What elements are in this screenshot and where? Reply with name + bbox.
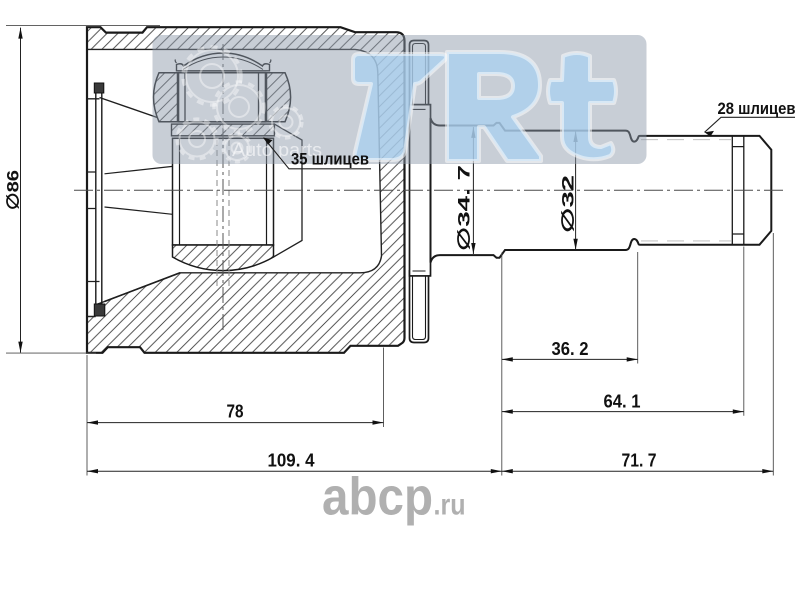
- svg-text:64. 1: 64. 1: [604, 392, 641, 412]
- svg-text:∅86: ∅86: [4, 170, 23, 210]
- svg-text:abcp: abcp: [322, 468, 433, 527]
- svg-text:28 шлицев: 28 шлицев: [718, 99, 796, 118]
- svg-text:∅32: ∅32: [559, 175, 578, 233]
- svg-text:35 шлицев: 35 шлицев: [291, 150, 369, 169]
- svg-text:109. 4: 109. 4: [268, 451, 315, 471]
- svg-text:78: 78: [227, 402, 244, 422]
- svg-text:.ru: .ru: [434, 489, 466, 522]
- svg-text:71. 7: 71. 7: [622, 451, 657, 471]
- svg-text:36. 2: 36. 2: [552, 339, 589, 359]
- svg-text:∅34. 7: ∅34. 7: [455, 165, 474, 251]
